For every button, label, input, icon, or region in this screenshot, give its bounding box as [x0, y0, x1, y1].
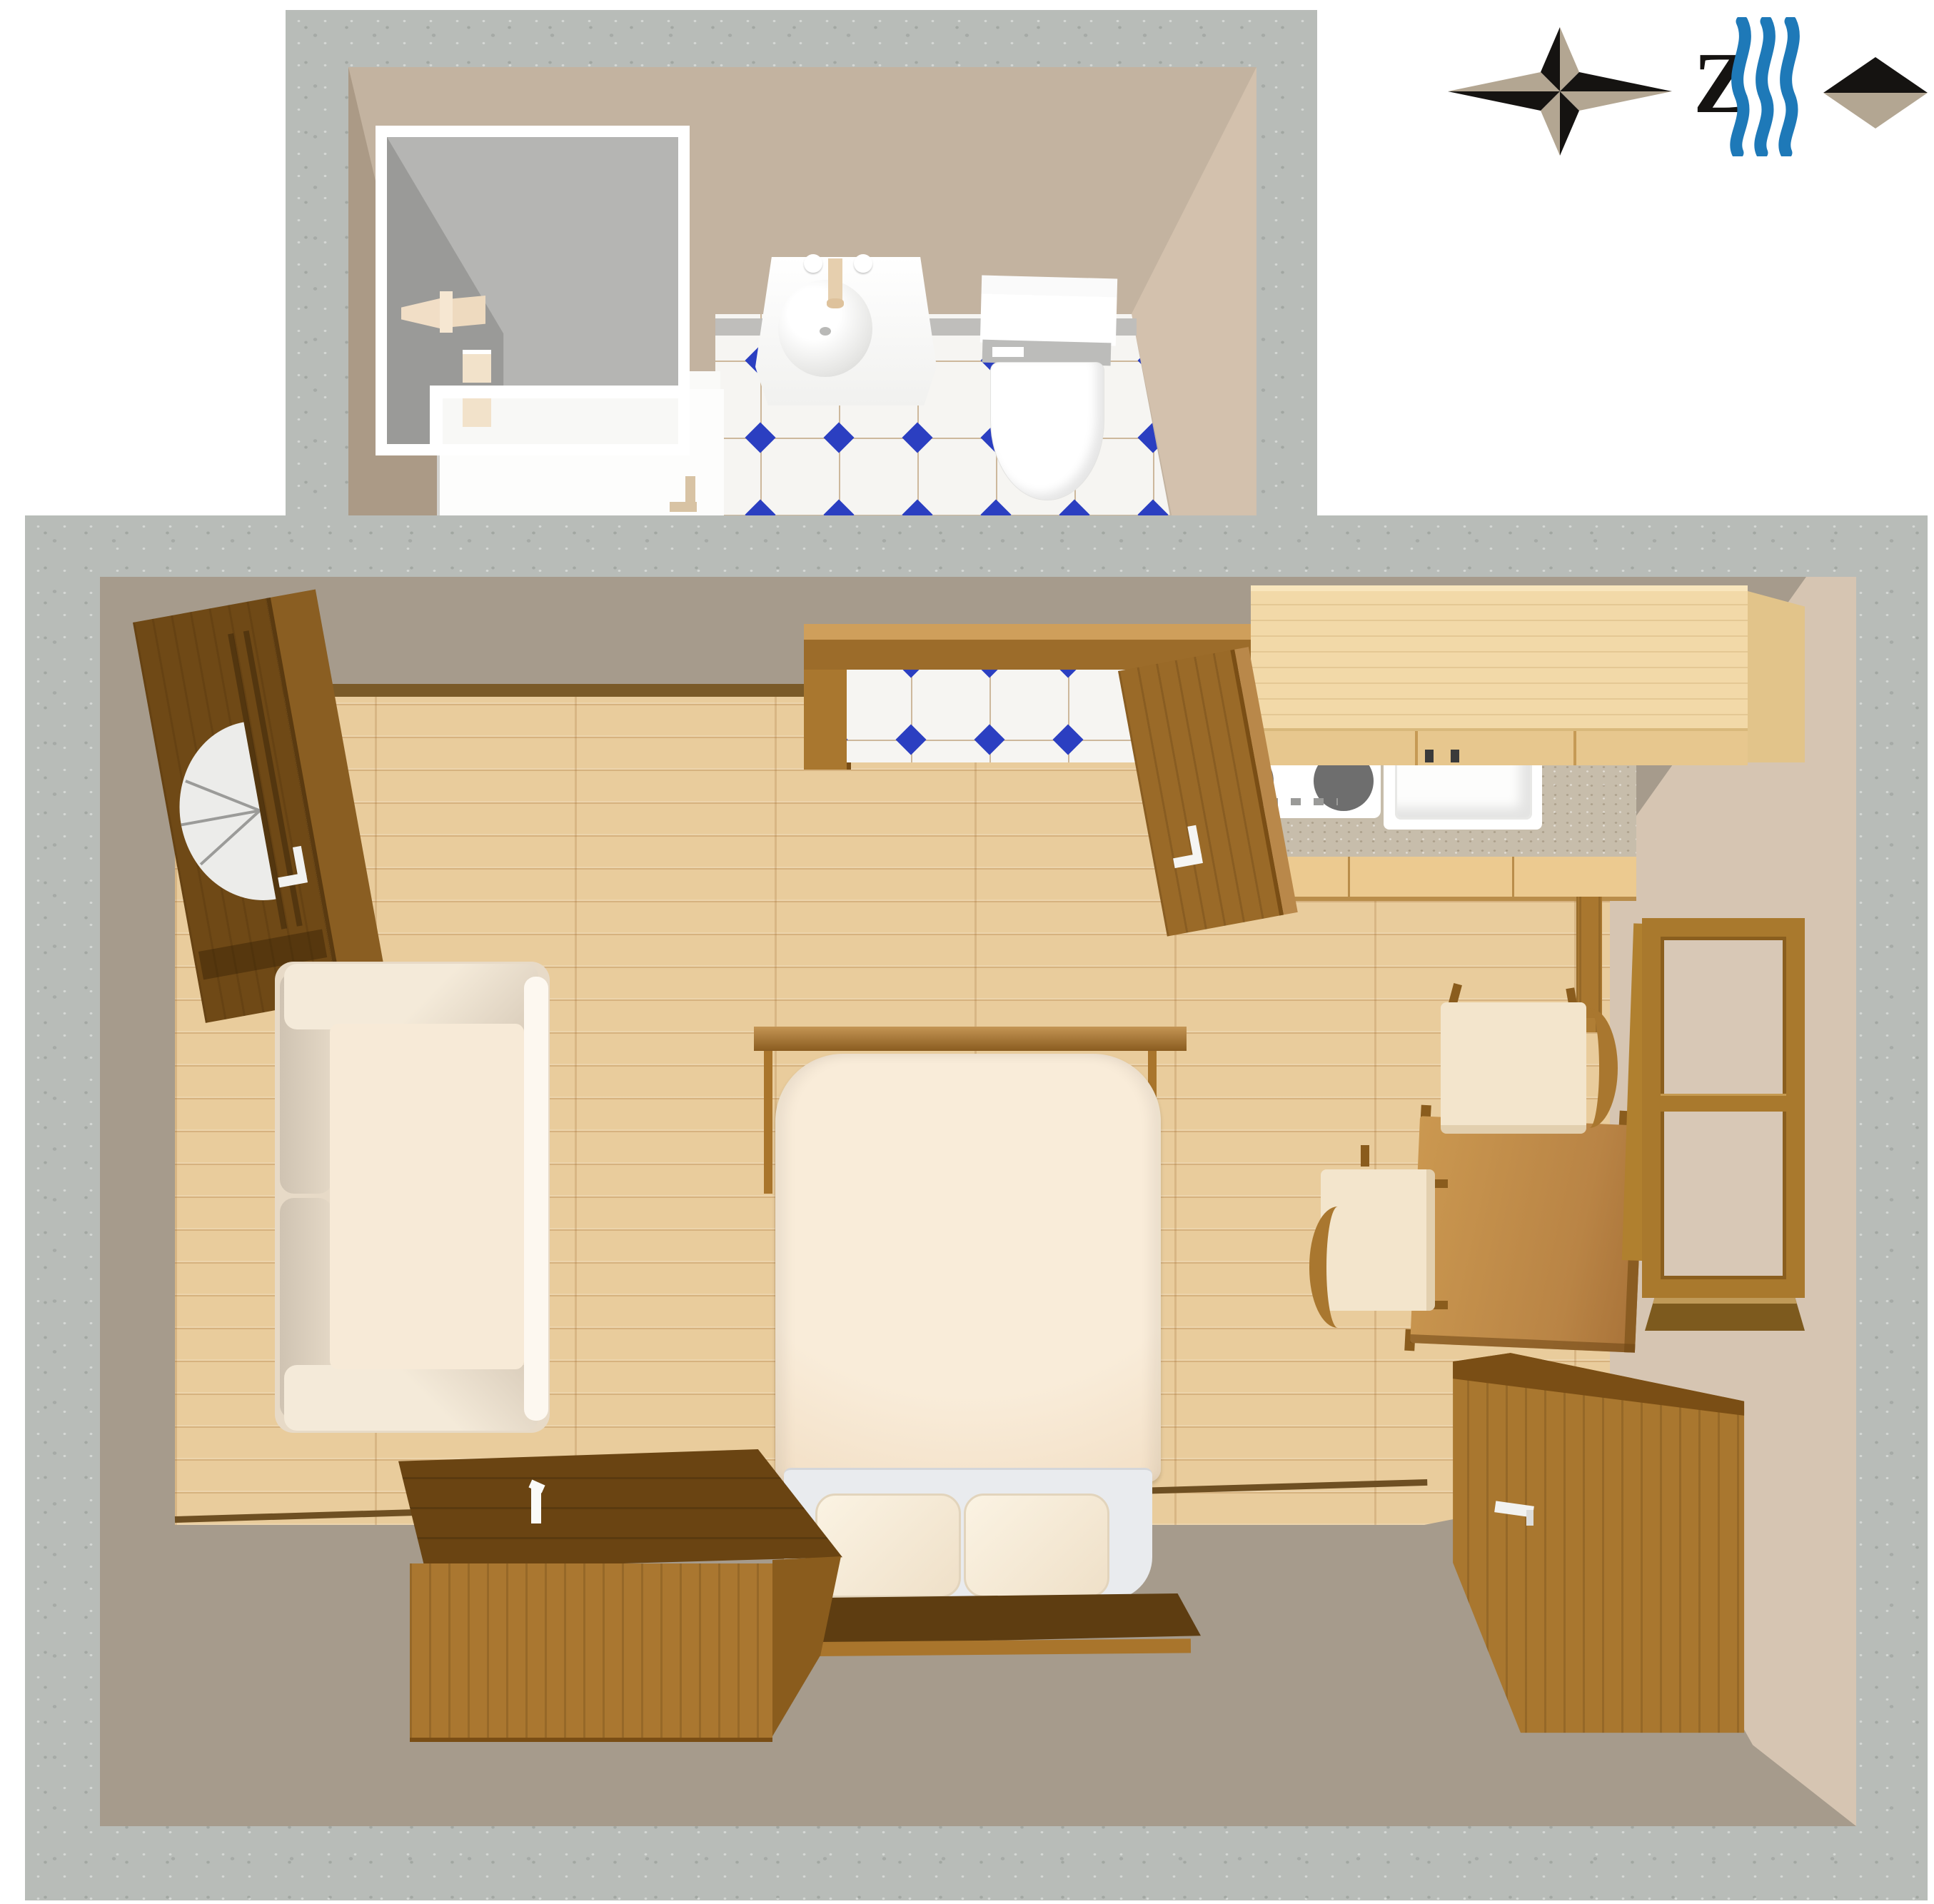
- chair-top-back-post: [1579, 897, 1602, 1018]
- candle: [531, 1488, 541, 1523]
- sofa-front-edge: [524, 977, 548, 1421]
- chest-left-front: [410, 1563, 772, 1742]
- kitchen-upper-cabinet-side: [1748, 591, 1805, 762]
- diamond-icon: [1822, 56, 1929, 130]
- shower-head-bracket: [440, 291, 453, 333]
- sofa-armrest: [284, 1365, 538, 1431]
- bed-post: [764, 1051, 772, 1194]
- bed-headboard: [754, 1027, 1187, 1051]
- shower-soap-shelf: [463, 350, 491, 383]
- chair-left-leg: [1361, 1145, 1369, 1167]
- kitchen-upper-cabinets: [1251, 591, 1748, 762]
- toilet-tank: [980, 276, 1117, 346]
- floor-plan-canvas: Z: [0, 0, 1934, 1904]
- window-sill: [1645, 1298, 1805, 1331]
- sofa-armrest: [284, 964, 538, 1029]
- bed-pillow: [815, 1494, 961, 1598]
- dining-table: [1410, 1116, 1645, 1352]
- faucet: [828, 258, 842, 303]
- waves-icon: [1726, 17, 1819, 156]
- window: [1642, 918, 1805, 1298]
- halfmoon-spoke: [185, 780, 261, 812]
- chest-right: [1448, 1351, 1746, 1741]
- faucet-spout: [827, 298, 844, 308]
- faucet-knob: [804, 254, 822, 273]
- bed-duvet: [775, 1054, 1161, 1482]
- sofa: [275, 962, 550, 1433]
- faucet-knob: [854, 254, 872, 273]
- chair-top-seat: [1441, 1002, 1586, 1134]
- upper-cabinet-door-lip: [1251, 728, 1748, 765]
- chest-right-handle-post: [1526, 1510, 1533, 1526]
- halfmoon-spoke: [181, 809, 260, 826]
- bathroom-door-handle-post: [685, 476, 695, 505]
- washbasin-drain: [820, 327, 831, 336]
- shower-soap-shelf: [463, 394, 491, 427]
- cabinet-handle: [1425, 750, 1434, 762]
- sofa-seat: [330, 1024, 524, 1369]
- toilet-flush-button: [992, 347, 1024, 357]
- window-mullion: [1661, 1094, 1786, 1112]
- shower-cabin: [376, 126, 690, 455]
- bed-pillow: [964, 1494, 1109, 1598]
- cabinet-handle: [1451, 750, 1459, 762]
- shower-head-arm: [453, 296, 485, 327]
- compass-rose-icon: [1442, 20, 1678, 163]
- shower-glass-frame-v: [430, 386, 443, 444]
